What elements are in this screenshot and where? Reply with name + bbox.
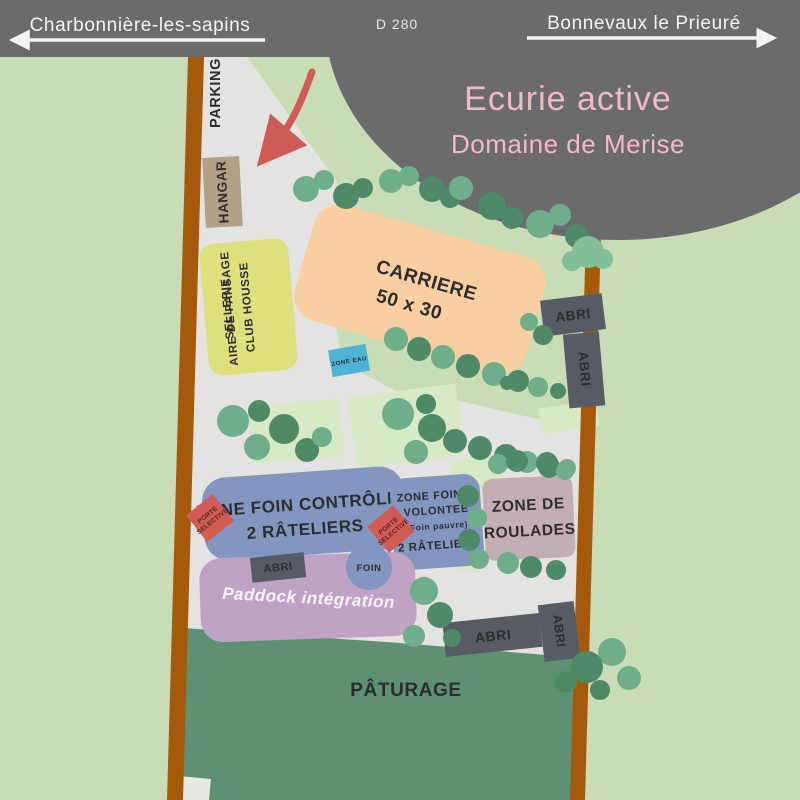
site-map: Charbonnière-les-sapins D 280 Bonnevaux … [0, 0, 800, 800]
page-title: Ecurie active [464, 80, 672, 118]
hangar-area: HANGAR [202, 156, 243, 228]
page-subtitle: Domaine de Merise [451, 129, 685, 159]
hay-spot: FOIN [346, 544, 392, 590]
map-canvas: Charbonnière-les-sapins D 280 Bonnevaux … [0, 0, 800, 800]
header-right-destination: Bonnevaux le Prieuré [547, 13, 741, 34]
header-road-label: D 280 [376, 16, 418, 32]
pasture-label: PÂTURAGE [350, 679, 461, 701]
hay-spot-label: FOIN [356, 563, 381, 574]
sellerie-area: SELLERIE CLUB HOUSSE AIRE DE PANSAGE [198, 237, 298, 376]
parking-label: PARKING [208, 58, 224, 128]
rolling-zone: ZONE DE ROULADES [481, 475, 577, 562]
shelter-label: ABRI [575, 351, 593, 388]
header-left-destination: Charbonnière-les-sapins [30, 15, 251, 36]
shelter-area: ABRI [538, 601, 581, 662]
shelter-area: ABRI [563, 332, 605, 409]
pasture-area [171, 628, 583, 800]
